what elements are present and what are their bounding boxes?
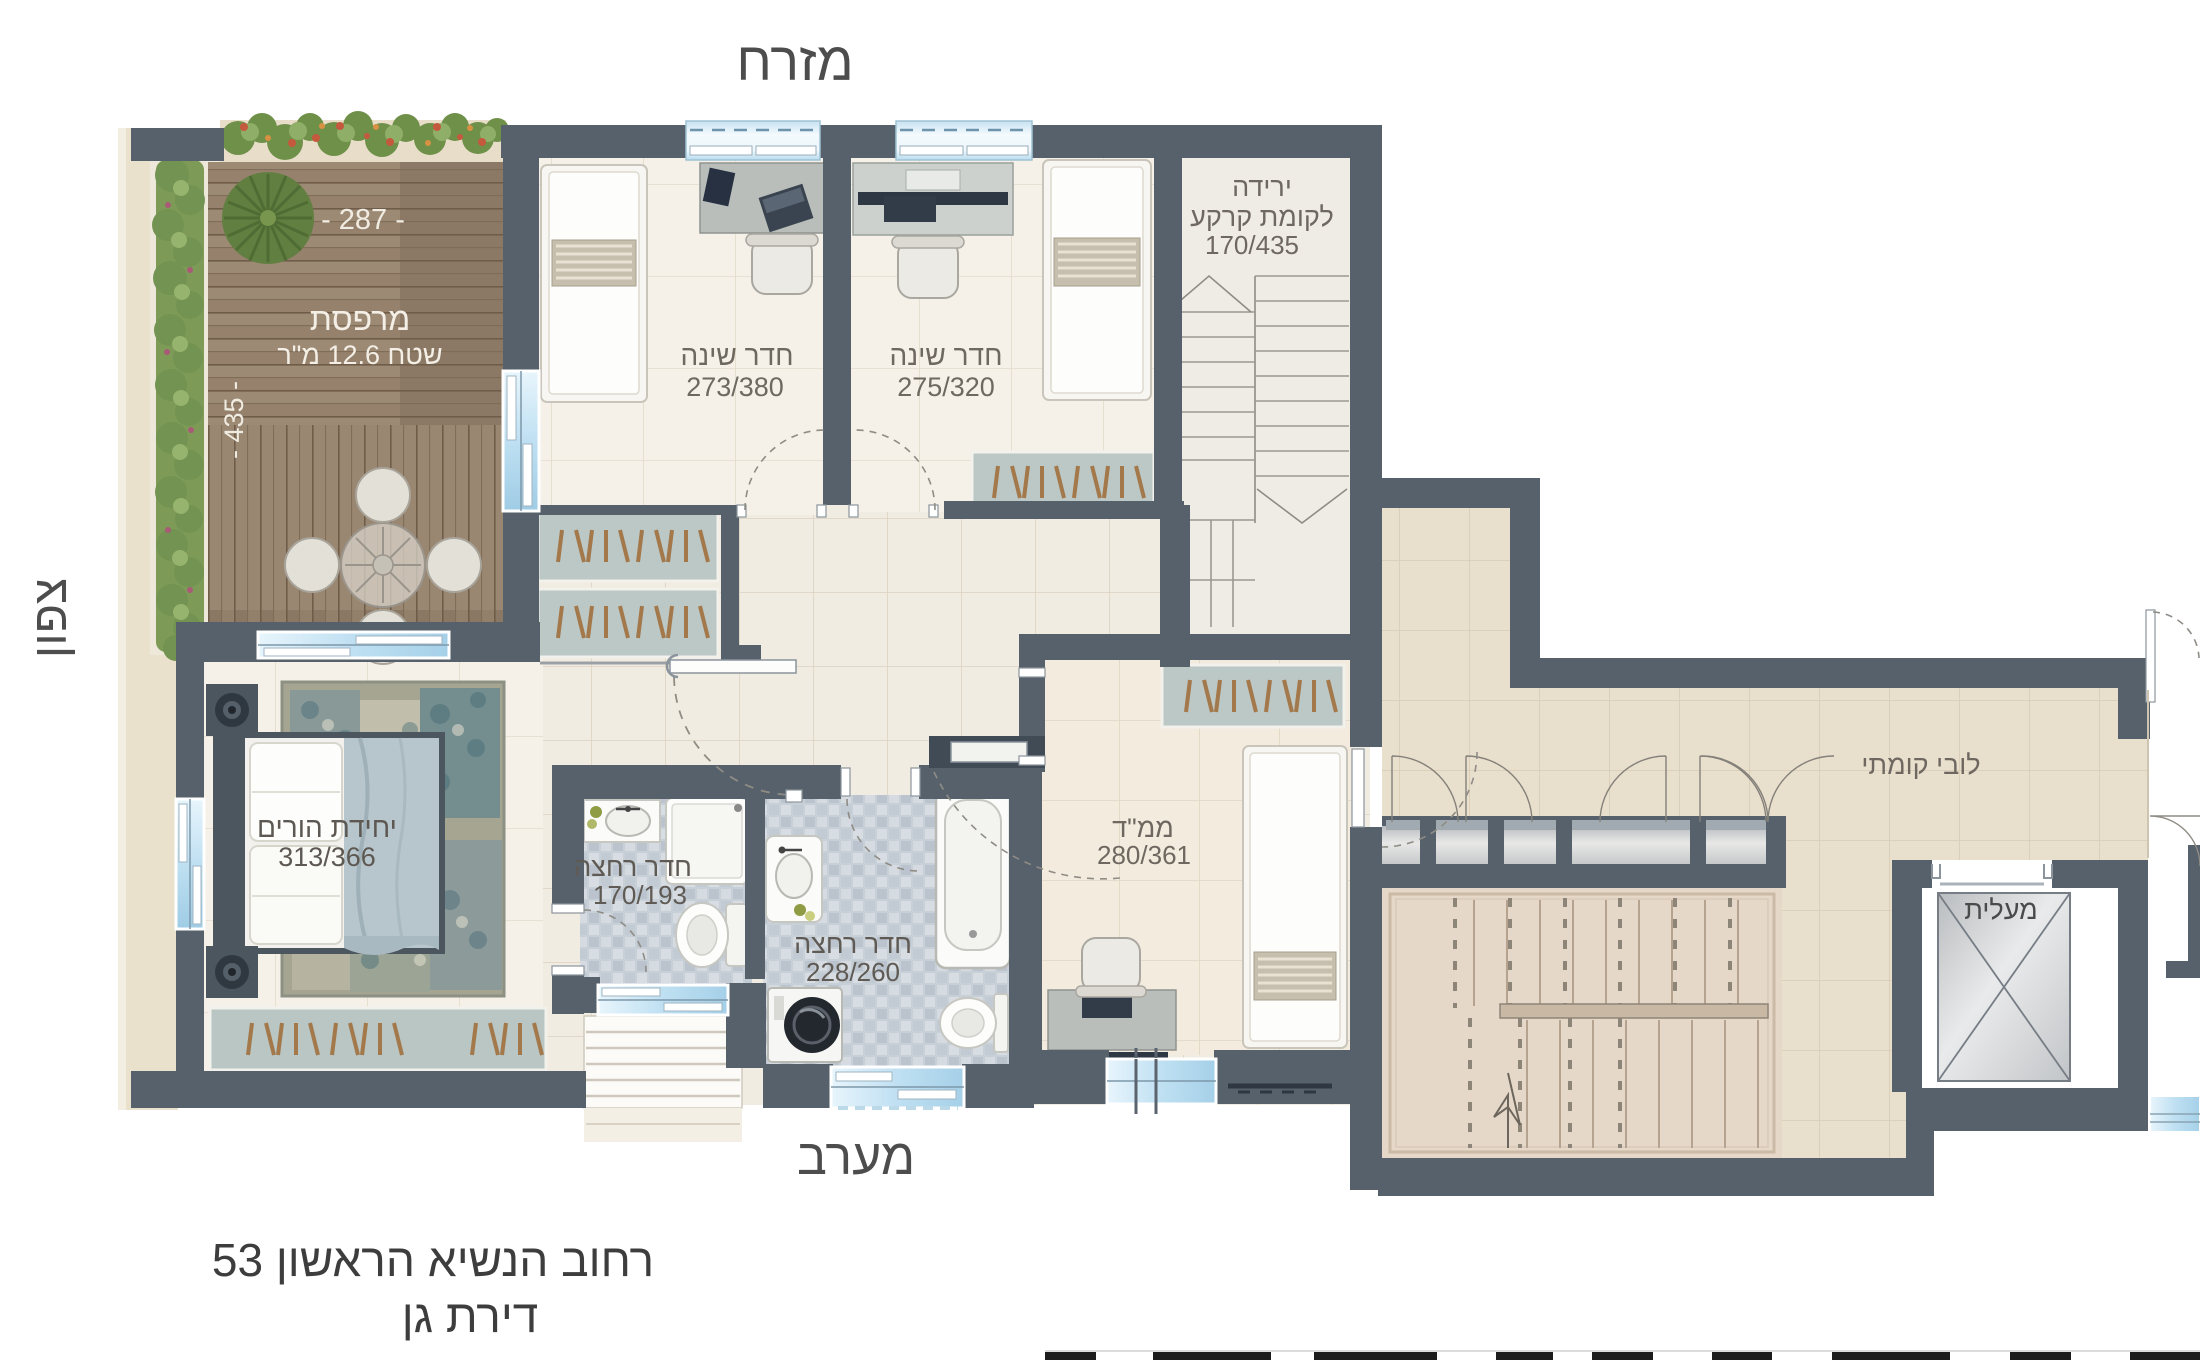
svg-text:מעלית: מעלית <box>1964 895 2037 925</box>
svg-text:275/320: 275/320 <box>897 372 995 402</box>
svg-text:280/361: 280/361 <box>1097 840 1191 870</box>
svg-text:- 287 -: - 287 - <box>321 204 405 236</box>
svg-text:170/193: 170/193 <box>593 880 687 910</box>
svg-text:דירת גן: דירת גן <box>402 1290 539 1342</box>
svg-text:רחוב הנשיא הראשון 53: רחוב הנשיא הראשון 53 <box>212 1234 654 1286</box>
svg-text:228/260: 228/260 <box>806 957 900 987</box>
svg-text:לובי קומתי: לובי קומתי <box>1861 750 1980 780</box>
svg-text:מרפסת: מרפסת <box>310 301 410 337</box>
svg-text:יחידת הורים: יחידת הורים <box>257 812 397 843</box>
svg-text:273/380: 273/380 <box>686 372 784 402</box>
svg-text:מערב: מערב <box>797 1129 915 1185</box>
svg-text:לקומת קרקע: לקומת קרקע <box>1190 202 1334 232</box>
svg-text:- 435 -: - 435 - <box>219 381 249 459</box>
svg-text:ממ"ד: ממ"ד <box>1112 813 1174 843</box>
svg-text:313/366: 313/366 <box>278 842 376 872</box>
svg-text:שטח 12.6 מ"ר: שטח 12.6 מ"ר <box>277 340 442 370</box>
svg-text:צפון: צפון <box>24 578 77 658</box>
svg-text:חדר שינה: חדר שינה <box>889 340 1002 371</box>
svg-text:170/435: 170/435 <box>1205 230 1299 260</box>
svg-text:מזרח: מזרח <box>736 32 853 92</box>
svg-text:ירידה: ירידה <box>1232 172 1292 202</box>
svg-text:חדר רחצה: חדר רחצה <box>794 929 912 959</box>
svg-text:חדר שינה: חדר שינה <box>680 340 793 371</box>
svg-text:חדר רחצה: חדר רחצה <box>574 852 692 882</box>
